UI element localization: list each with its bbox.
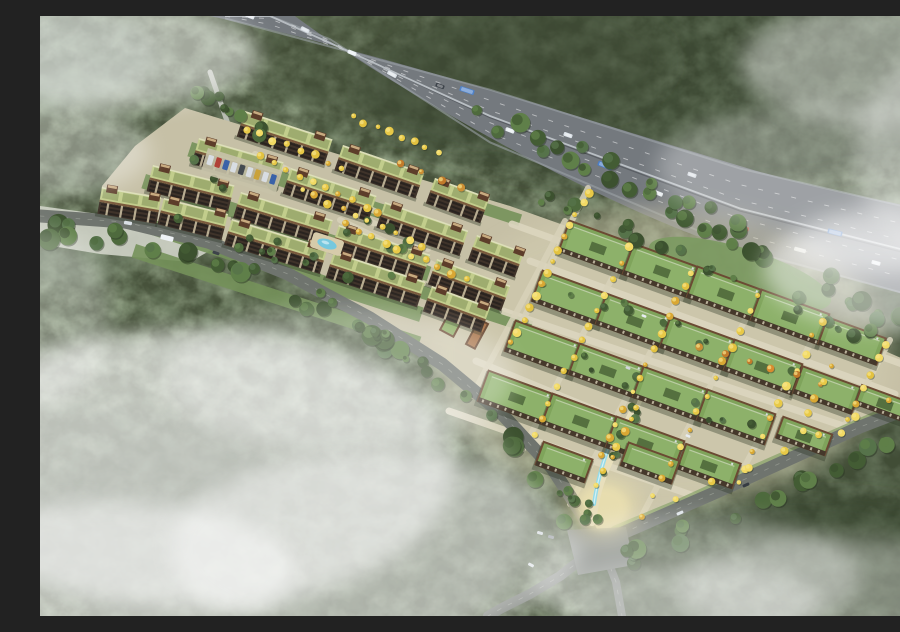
tree-crown: [437, 150, 440, 153]
tree-crown: [235, 243, 240, 248]
tree-crown: [731, 275, 734, 278]
tree-crown: [593, 515, 598, 520]
tree-crown: [394, 231, 396, 233]
tree-crown: [365, 219, 367, 221]
tree-crown: [651, 346, 655, 350]
tree-crown: [669, 462, 672, 465]
tree-crown: [526, 304, 530, 308]
tree-crown: [269, 138, 273, 142]
tree-crown: [577, 142, 584, 149]
tree-crown: [174, 214, 179, 219]
tree-crown: [611, 277, 614, 280]
tree-crown: [562, 234, 565, 237]
tree-crown: [360, 120, 364, 124]
tree-crown: [523, 318, 526, 321]
tree-crown: [324, 201, 328, 205]
tree-crown: [651, 494, 653, 496]
tree-crown: [343, 220, 346, 223]
tree-crown: [783, 382, 787, 386]
tree-crown: [579, 337, 582, 340]
tree-crown: [380, 224, 383, 227]
tree-crown: [557, 491, 560, 494]
tree-crown: [572, 355, 575, 358]
tree-crown: [709, 478, 713, 482]
tree-crown: [775, 400, 779, 404]
tree-crown: [317, 289, 322, 294]
tree-crown: [835, 326, 838, 329]
tree-crown: [621, 299, 625, 303]
tree-crown: [352, 114, 354, 116]
tree-crown: [90, 237, 98, 245]
tree-crown: [567, 222, 571, 226]
tree-crown: [221, 105, 225, 109]
tree-crown: [602, 293, 606, 297]
tree-crown: [595, 308, 598, 311]
tree-crown: [551, 141, 559, 149]
tree-crown: [883, 342, 887, 346]
tree-crown: [323, 185, 326, 188]
tree-crown: [531, 131, 540, 140]
tree-crown: [465, 276, 468, 279]
tree-crown: [639, 514, 642, 517]
tree-crown: [343, 273, 349, 279]
tree-crown: [336, 192, 339, 195]
tree-crown: [727, 239, 733, 245]
tree-crown: [673, 497, 676, 500]
tree-crown: [284, 141, 287, 144]
tree-crown: [771, 491, 780, 500]
tree-crown: [235, 110, 242, 117]
tree-crown: [326, 161, 329, 164]
tree-crown: [821, 379, 824, 382]
tree-crown: [146, 243, 155, 252]
tree-crown: [108, 224, 117, 233]
tree-crown: [563, 153, 573, 163]
tree-crown: [569, 199, 577, 207]
tree-crown: [393, 246, 397, 250]
tree-crown: [419, 244, 423, 248]
tree-crown: [301, 188, 303, 190]
tree-crown: [398, 160, 402, 164]
tree-crown: [544, 270, 548, 274]
tree-crown: [311, 179, 314, 182]
tree-crown: [767, 416, 770, 419]
tree-crown: [630, 417, 632, 419]
tree-crown: [688, 271, 691, 274]
tree-crown: [676, 245, 682, 251]
tree-crown: [356, 229, 359, 232]
tree-crown: [683, 283, 687, 287]
tree-crown: [794, 372, 798, 376]
tree-crown: [830, 464, 838, 472]
tree-crown: [622, 383, 626, 387]
tree-crown: [723, 351, 727, 355]
tree-crown: [743, 243, 753, 253]
tree-crown: [876, 355, 880, 359]
tree-crown: [613, 423, 616, 426]
tree-crown: [551, 260, 553, 262]
tree-crown: [737, 481, 739, 483]
tree-crown: [693, 409, 696, 412]
tree-crown: [643, 363, 645, 365]
tree-crown: [660, 319, 664, 323]
tree-crown: [631, 390, 633, 392]
tree-crown: [298, 148, 301, 151]
tree-crown: [713, 226, 722, 235]
mist-patch: [165, 306, 515, 450]
tree-crown: [659, 475, 663, 479]
tree-crown: [767, 365, 771, 369]
tree-crown: [272, 257, 276, 261]
tree-crown: [49, 216, 61, 228]
tree-crown: [647, 179, 653, 185]
rendering-canvas: Aerial rendering of a residential develo…: [40, 16, 900, 616]
tree-crown: [512, 114, 523, 125]
tree-crown: [719, 358, 723, 362]
tree-crown: [344, 229, 348, 233]
tree-crown: [312, 151, 316, 155]
tree-crown: [435, 264, 438, 267]
tree-crown: [811, 395, 815, 399]
tree-crown: [412, 138, 416, 142]
tree-crown: [538, 200, 542, 204]
tree-crown: [737, 328, 741, 332]
tree-crown: [259, 249, 263, 253]
tree-crown: [604, 153, 614, 163]
tree-crown: [268, 248, 273, 253]
tree-crown: [692, 399, 696, 403]
tree-crown: [729, 344, 733, 348]
tree-crown: [599, 453, 602, 456]
tree-crown: [620, 261, 623, 264]
tree-crown: [504, 438, 514, 448]
tree-crown: [594, 483, 597, 486]
tree-crown: [629, 234, 638, 243]
tree-crown: [676, 321, 679, 324]
tree-crown: [586, 190, 590, 194]
tree-crown: [589, 368, 592, 371]
tree-crown: [568, 496, 572, 500]
tree-crown: [696, 344, 700, 348]
tree-crown: [788, 367, 792, 371]
tree-crown: [672, 298, 676, 302]
tree-crown: [180, 244, 190, 254]
tree-crown: [409, 254, 412, 257]
tree-crown: [283, 168, 286, 171]
tree-crown: [688, 428, 690, 430]
tree-crown: [614, 452, 618, 456]
tree-crown: [561, 368, 564, 371]
tree-crown: [761, 434, 764, 437]
tree-crown: [580, 515, 586, 521]
tree-crown: [756, 493, 765, 502]
tree-crown: [540, 416, 544, 420]
tree-crown: [246, 235, 250, 239]
tree-crown: [846, 417, 848, 419]
tree-crown: [805, 410, 809, 414]
tree-crown: [747, 359, 750, 362]
tree-crown: [458, 184, 462, 188]
tree-crown: [448, 271, 452, 275]
tree-crown: [419, 169, 422, 172]
tree-crown: [801, 473, 810, 482]
tree-crown: [720, 418, 723, 421]
tree-crown: [568, 292, 571, 295]
tree-crown: [328, 299, 333, 304]
tree-crown: [847, 329, 855, 337]
tree-crown: [623, 183, 632, 192]
tree-crown: [439, 177, 443, 181]
tree-crown: [399, 135, 402, 138]
tree-crown: [746, 465, 750, 469]
tree-crown: [611, 455, 613, 457]
tree-crown: [311, 192, 315, 196]
tree-crown: [374, 209, 378, 213]
tree-crown: [297, 175, 300, 178]
tree-crown: [626, 243, 630, 247]
tree-crown: [667, 313, 671, 317]
tree-crown: [539, 281, 542, 284]
tree-crown: [620, 406, 624, 410]
tree-crown: [244, 127, 248, 131]
tree-crown: [424, 257, 427, 260]
tree-crown: [861, 385, 864, 388]
tree-crown: [190, 156, 195, 161]
tree-crown: [257, 130, 261, 134]
tree-crown: [781, 448, 785, 452]
tree-crown: [613, 444, 617, 448]
tree-crown: [339, 166, 342, 169]
tree-crown: [272, 160, 275, 163]
tree-crown: [852, 413, 856, 417]
tree-crown: [513, 329, 517, 333]
tree-crown: [564, 207, 569, 212]
tree-crown: [816, 432, 819, 435]
tree-crown: [594, 213, 598, 217]
tree-crown: [364, 205, 368, 209]
tree-crown: [849, 452, 859, 462]
tree-crown: [756, 294, 759, 297]
tree-crown: [564, 487, 569, 492]
tree-crown: [600, 468, 603, 471]
tree-crown: [554, 247, 558, 251]
tree-crown: [656, 242, 663, 249]
tree-crown: [492, 126, 499, 133]
tree-crown: [628, 403, 633, 408]
tree-crown: [709, 265, 712, 268]
tree-crown: [422, 145, 425, 148]
tree-crown: [533, 293, 537, 297]
tree-crown: [706, 417, 709, 420]
tree-crown: [274, 238, 278, 242]
tree-crown: [748, 420, 753, 425]
tree-crown: [853, 401, 857, 405]
tree-crown: [698, 224, 706, 232]
tree-crown: [388, 272, 392, 276]
tree-crown: [830, 364, 832, 366]
tree-crown: [472, 106, 478, 112]
tree-crown: [886, 398, 889, 401]
tree-crown: [637, 375, 640, 378]
tree-crown: [750, 449, 753, 452]
tree-crown: [212, 259, 220, 267]
tree-crown: [704, 266, 709, 271]
tree-crown: [581, 199, 585, 203]
tree-crown: [585, 500, 589, 504]
tree-crown: [249, 264, 255, 270]
tree-crown: [303, 260, 307, 264]
tree-crown: [678, 444, 681, 447]
tree-crown: [369, 234, 372, 237]
tree-crown: [386, 128, 390, 132]
tree-crown: [602, 172, 612, 182]
tree-crown: [407, 237, 411, 241]
tree-crown: [748, 309, 751, 312]
tree-crown: [342, 206, 345, 209]
tree-crown: [625, 306, 630, 311]
tree-crown: [310, 253, 315, 258]
tree-crown: [801, 428, 804, 431]
tree-crown: [714, 376, 716, 378]
tree-crown: [290, 296, 297, 303]
tree-crown: [860, 439, 870, 449]
tree-crown: [601, 304, 605, 308]
tree-crown: [624, 220, 630, 226]
tree-crown: [546, 402, 549, 405]
tree-crown: [581, 353, 585, 357]
tree-crown: [585, 323, 589, 327]
tree-crown: [803, 351, 807, 355]
tree-crown: [350, 197, 353, 200]
tree-crown: [810, 333, 813, 336]
tree-crown: [880, 438, 889, 447]
tree-crown: [584, 510, 588, 514]
tree-crown: [528, 472, 537, 481]
tree-crown: [705, 395, 708, 398]
tree-crown: [554, 384, 557, 387]
tree-crown: [677, 211, 687, 221]
tree-crown: [508, 340, 511, 343]
tree-crown: [634, 405, 637, 408]
tree-crown: [867, 372, 871, 376]
aerial-development-rendering: Aerial rendering of a residential develo…: [40, 16, 900, 616]
tree-crown: [215, 92, 220, 97]
tree-crown: [219, 185, 223, 189]
tree-crown: [659, 331, 663, 335]
tree-crown: [838, 430, 842, 434]
tree-crown: [622, 428, 626, 432]
tree-crown: [545, 192, 550, 197]
tree-crown: [383, 241, 387, 245]
tree-crown: [606, 434, 610, 438]
tree-crown: [232, 263, 243, 274]
tree-crown: [257, 153, 261, 157]
tree-crown: [353, 213, 356, 216]
tree-crown: [63, 219, 70, 226]
tree-crown: [704, 339, 707, 342]
tree-crown: [573, 213, 575, 215]
tree-crown: [376, 125, 378, 127]
tree-crown: [532, 432, 535, 435]
